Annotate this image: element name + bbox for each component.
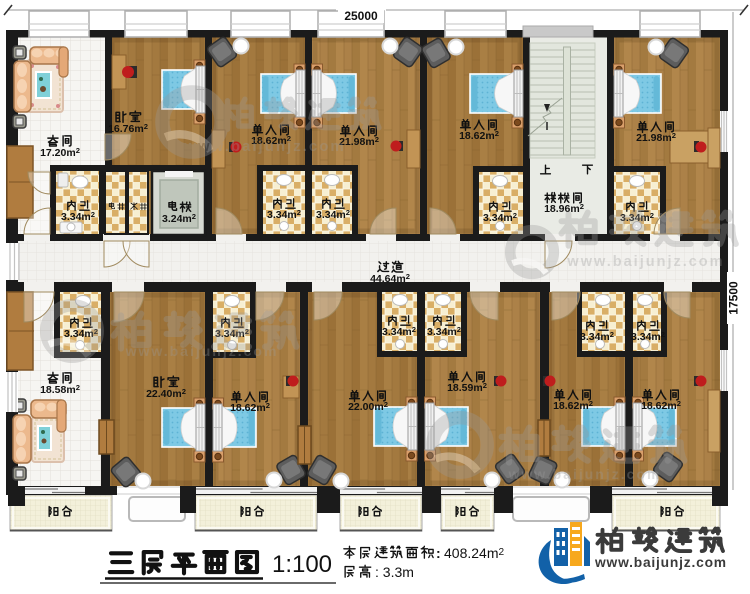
svg-text:3.34m2: 3.34m2 [267, 208, 301, 221]
svg-text:3.24m2: 3.24m2 [162, 212, 196, 225]
svg-text::: : [436, 545, 441, 561]
svg-text:3.34m2: 3.34m2 [631, 330, 665, 343]
svg-text:21.98m2: 21.98m2 [636, 131, 676, 144]
svg-text:3.34m2: 3.34m2 [427, 325, 461, 338]
svg-text:18.62m2: 18.62m2 [459, 129, 499, 142]
svg-text:1:100: 1:100 [272, 551, 332, 578]
svg-text:www.baijunjz.com: www.baijunjz.com [125, 343, 279, 359]
svg-text:18.59m2: 18.59m2 [447, 381, 487, 394]
svg-text:3.34m2: 3.34m2 [580, 330, 614, 343]
svg-text:18.62m2: 18.62m2 [641, 399, 681, 412]
svg-text:3.34m2: 3.34m2 [382, 325, 416, 338]
svg-text:3.34m2: 3.34m2 [316, 208, 350, 221]
svg-text:22.40m2: 22.40m2 [146, 387, 186, 400]
svg-text:3.34m2: 3.34m2 [61, 210, 95, 223]
svg-text:44.64m2: 44.64m2 [370, 272, 410, 285]
svg-text:16.76m2: 16.76m2 [108, 122, 148, 135]
svg-text:17.20m2: 17.20m2 [40, 146, 80, 159]
svg-text:25000: 25000 [344, 9, 378, 23]
svg-text:18.96m2: 18.96m2 [544, 202, 584, 215]
svg-text:www.baijunjz.com: www.baijunjz.com [594, 555, 727, 570]
svg-text:18.62m2: 18.62m2 [553, 399, 593, 412]
svg-text:18.62m2: 18.62m2 [230, 401, 270, 414]
svg-text:18.58m2: 18.58m2 [40, 383, 80, 396]
svg-text:3.34m2: 3.34m2 [483, 211, 517, 224]
svg-text:: 3.3m: : 3.3m [375, 564, 414, 580]
svg-text:22.00m2: 22.00m2 [348, 400, 388, 413]
svg-text:17500: 17500 [727, 281, 741, 315]
svg-text:www.baijunjz.com: www.baijunjz.com [183, 138, 345, 155]
svg-text:www.baijunjz.com: www.baijunjz.com [566, 254, 724, 270]
svg-text:www.baijunjz.com: www.baijunjz.com [508, 466, 662, 482]
svg-text:408.24m2: 408.24m2 [444, 545, 505, 561]
